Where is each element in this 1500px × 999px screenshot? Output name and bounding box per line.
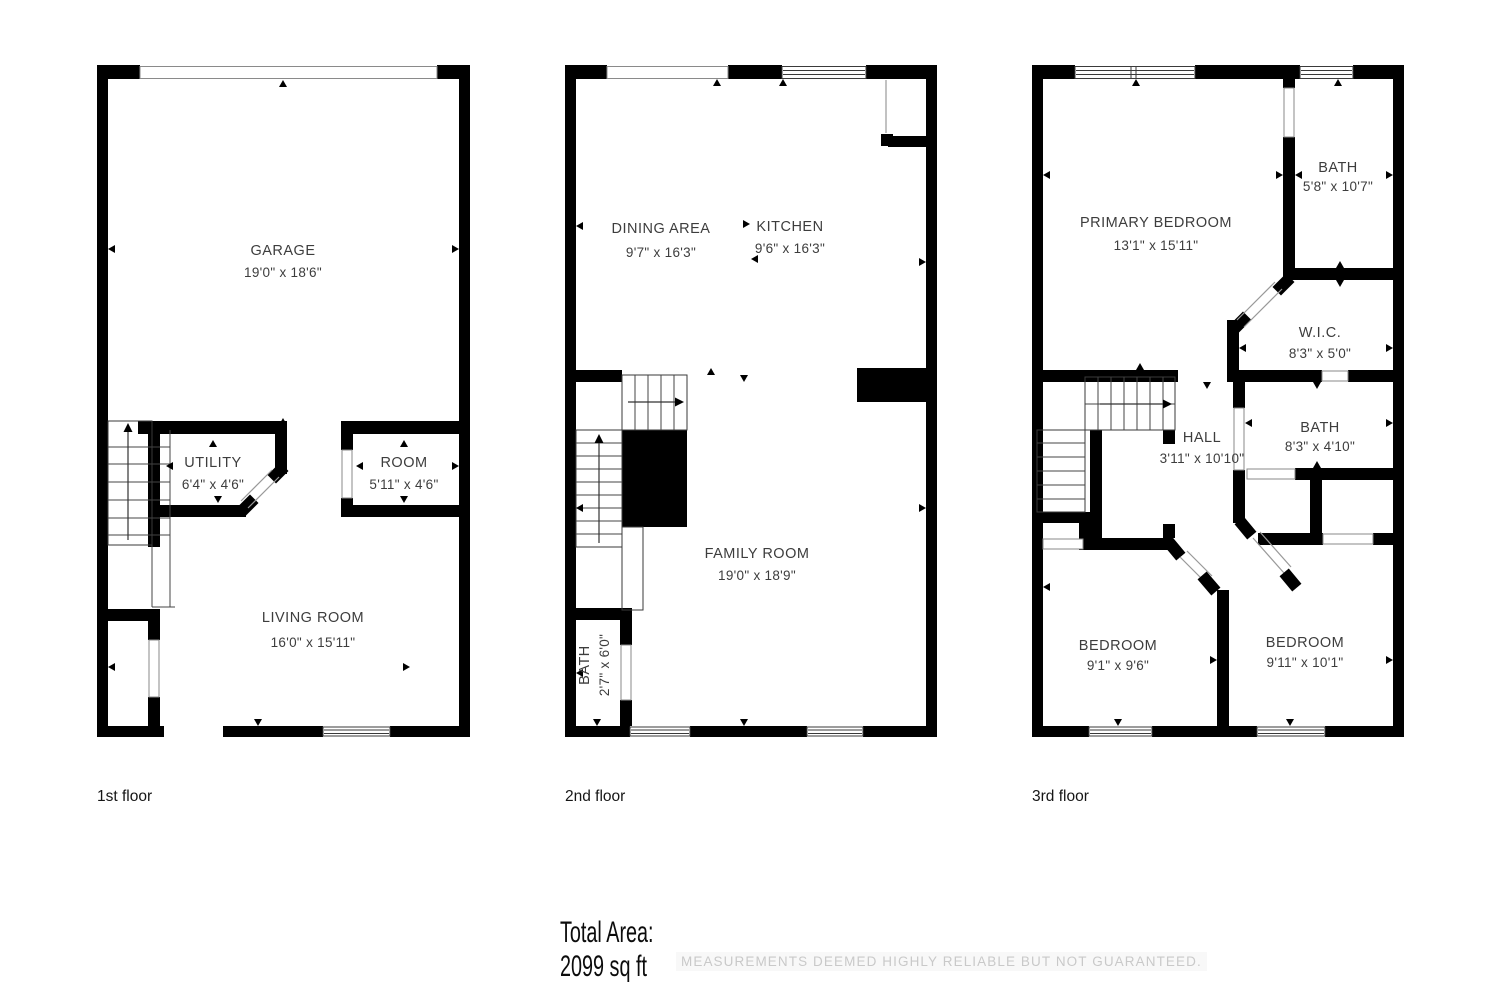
floor2-walls bbox=[565, 65, 937, 737]
room-dims-living-room: 16'0" x 15'11" bbox=[271, 635, 356, 650]
floor2-room-labels: DINING AREA 9'7" x 16'3" KITCHEN 9'6" x … bbox=[577, 219, 825, 696]
measurements-disclaimer: MEASUREMENTS DEEMED HIGHLY RELIABLE BUT … bbox=[676, 952, 1207, 971]
room-dims-dining-area: 9'7" x 16'3" bbox=[626, 245, 696, 260]
room-dims-room: 5'11" x 4'6" bbox=[369, 477, 438, 492]
room-dims-family-room: 19'0" x 18'9" bbox=[718, 568, 796, 583]
room-label-bath2f: BATH bbox=[577, 645, 593, 685]
room-label-living-room: LIVING ROOM bbox=[262, 610, 364, 626]
room-label-room: ROOM bbox=[380, 455, 427, 471]
room-label-garage: GARAGE bbox=[250, 243, 315, 259]
room-dims-kitchen: 9'6" x 16'3" bbox=[755, 241, 825, 256]
room-dims-bath-mid: 8'3" x 4'10" bbox=[1285, 439, 1355, 454]
room-dims-bedroom-right: 9'11" x 10'1" bbox=[1267, 655, 1344, 670]
room-label-kitchen: KITCHEN bbox=[756, 219, 823, 235]
room-label-dining-area: DINING AREA bbox=[612, 221, 711, 237]
total-area-value: 2099 sq ft bbox=[560, 950, 654, 984]
floorplan-drawing: GARAGE 19'0" x 18'6" UTILITY 6'4" x 4'6"… bbox=[0, 0, 1500, 999]
room-label-bath-upper: BATH bbox=[1318, 160, 1358, 176]
floor-label-2nd: 2nd floor bbox=[565, 788, 625, 805]
room-label-bedroom-right: BEDROOM bbox=[1266, 635, 1344, 651]
total-area-block: Total Area: 2099 sq ft bbox=[560, 916, 702, 984]
room-dims-bath-upper: 5'8" x 10'7" bbox=[1303, 179, 1373, 194]
room-label-wic: W.I.C. bbox=[1299, 325, 1341, 341]
room-label-bedroom-left: BEDROOM bbox=[1079, 638, 1157, 654]
floor2-door-openings bbox=[607, 67, 886, 701]
room-dims-bedroom-left: 9'1" x 9'6" bbox=[1087, 658, 1149, 673]
floor1-room-labels: GARAGE 19'0" x 18'6" UTILITY 6'4" x 4'6"… bbox=[182, 243, 439, 650]
room-dims-hall: 3'11" x 10'10" bbox=[1160, 451, 1245, 466]
room-dims-utility: 6'4" x 4'6" bbox=[182, 477, 244, 492]
floor-plan-3rd: PRIMARY BEDROOM 13'1" x 15'11" BATH 5'8"… bbox=[1032, 65, 1404, 805]
room-dims-primary-bedroom: 13'1" x 15'11" bbox=[1114, 238, 1199, 253]
room-label-primary-bedroom: PRIMARY BEDROOM bbox=[1080, 215, 1232, 231]
room-label-bath-mid: BATH bbox=[1300, 420, 1340, 436]
floor-label-3rd: 3rd floor bbox=[1032, 788, 1089, 805]
room-dims-garage: 19'0" x 18'6" bbox=[244, 265, 322, 280]
total-area-label: Total Area: bbox=[560, 916, 654, 950]
room-label-hall: HALL bbox=[1183, 430, 1221, 446]
floor1-window bbox=[323, 727, 390, 736]
floor3-stairs bbox=[1037, 377, 1175, 512]
room-dims-bath2f: 2'7" x 6'0" bbox=[597, 634, 612, 696]
floor-plan-2nd: DINING AREA 9'7" x 16'3" KITCHEN 9'6" x … bbox=[565, 65, 937, 805]
floor-plan-1st: GARAGE 19'0" x 18'6" UTILITY 6'4" x 4'6"… bbox=[97, 65, 470, 805]
floor1-door-openings bbox=[140, 67, 437, 698]
floor2-windows bbox=[630, 67, 866, 737]
floor-label-1st: 1st floor bbox=[97, 788, 152, 805]
floor1-dimension-arrows bbox=[108, 80, 459, 726]
room-label-utility: UTILITY bbox=[184, 455, 241, 471]
room-dims-wic: 8'3" x 5'0" bbox=[1289, 346, 1351, 361]
room-label-family-room: FAMILY ROOM bbox=[705, 546, 810, 562]
